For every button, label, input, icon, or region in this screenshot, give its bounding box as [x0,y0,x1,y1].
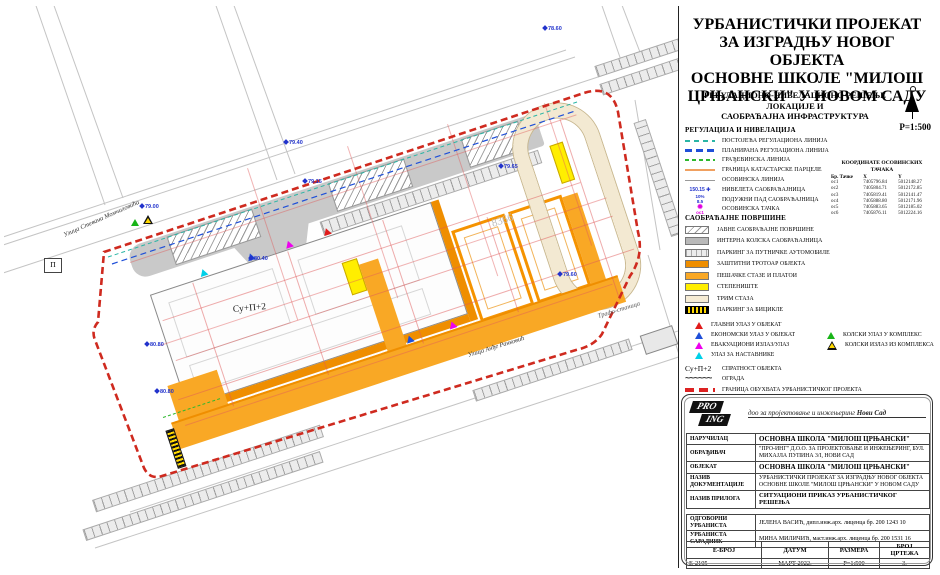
site-plan-map: 78.60 79.40 79.00 79.15 80.40 80.80 80.8… [4,6,679,568]
info-row: ОБЈЕКАТОСНОВНА ШКОЛА "МИЛОШ ЦРЊАНСКИ" [687,462,930,473]
stairs-swatch [685,283,709,291]
info-row: ОБРАЂИВАЧ"ПРО-ИНГ" Д.О.О. ЗА ПРОЈЕКТОВАЊ… [687,445,930,462]
axis-points-coordinate-table: КООРДИНАТЕ ОСОВИНСКИХ ТАЧАКА Бр. Тачке X… [831,160,933,218]
spot-level: 80.40 [254,256,268,262]
footer-table: Е-БРОЈ ДАТУМ РАЗМЕРА БРОЈ ЦРТЕЖА Е-2105 … [686,541,930,569]
floors-legend-row: Су+П+2 СПРАТНОСТ ОБЈЕКТА [685,364,782,373]
title-block-panel: УРБАНИСТИЧКИ ПРОЈЕКАТ ЗА ИЗГРАДЊУ НОВОГ … [679,6,936,568]
bicycle-parking-swatch [685,306,709,314]
protective-sidewalk-swatch [685,260,709,268]
drawing-subtitle: РЕГУЛАЦИОНО-НИВЕЛАЦИОНО РЕШЕЊЕ ЛОКАЦИЈЕ … [695,90,895,122]
axis-line-swatch [685,180,715,181]
info-row: ОДГОВОРНИ УРБАНИСТАЈЕЛЕНА ВАСИЋ, дипл.ин… [687,515,930,531]
footer-value-row: Е-2105 МАРТ 2022. Р=1:500 3. [687,559,930,569]
info-row: НАЗИВ ПРИЛОГАСИТУАЦИОНИ ПРИКАЗ УРБАНИСТИ… [687,490,930,509]
trim-track-swatch [685,295,709,303]
pro-ing-logo: PRO ING [691,401,745,428]
title-block-box: PRO ING доо за пројектовање и инжењеринг… [681,394,933,566]
car-parking-swatch [685,249,709,257]
spot-level: 79.65 [504,164,518,170]
legend-regulation-heading: РЕГУЛАЦИЈА И НИВЕЛАЦИЈА [685,126,796,134]
footer-header-row: Е-БРОЈ ДАТУМ РАЗМЕРА БРОЈ ЦРТЕЖА [687,542,930,559]
internal-road-swatch [685,237,709,245]
project-info-table: НАРУЧИЛАЦОСНОВНА ШКОЛА "МИЛОШ ЦРЊАНСКИ" … [686,433,930,509]
p-box-label: П [44,258,62,273]
economic-entrance-icon [695,332,703,339]
main-entrance-icon [695,322,703,329]
spot-level: 79.15 [308,179,322,185]
planned-regulation-line-swatch [685,149,715,152]
spot-level: 80.80 [150,342,164,348]
public-traffic-swatch [685,226,709,234]
building-line-swatch [685,159,715,161]
teachers-entrance-icon [695,352,703,359]
legend-surfaces-list: ЈАВНЕ САОБРАЋАЈНЕ ПОВРШИНЕ ИНТЕРНА КОЛСК… [685,224,835,316]
vehicle-entrance-marker [131,219,139,226]
vehicle-exit-icon [827,341,837,350]
drawing-sheet: 78.60 79.40 79.00 79.15 80.40 80.80 80.8… [0,0,940,575]
evacuation-exit-icon [695,342,703,349]
existing-regulation-line-swatch [685,140,715,142]
spot-level: 78.60 [548,26,562,32]
project-boundary-legend-row: ГРАНИЦА ОБУХВАТА УРБАНИСТИЧКОГ ПРОЈЕКТА [685,387,862,393]
spot-level: 79.00 [145,204,159,210]
north-arrow-icon [904,86,920,120]
project-boundary [4,6,679,568]
coord-row: ос67405876.115012224.16 [831,211,933,217]
info-row: НАРУЧИЛАЦОСНОВНА ШКОЛА "МИЛОШ ЦРЊАНСКИ" [687,434,930,445]
fence-legend-row: ~~~~~~ ОГРАДА [685,376,744,382]
company-tagline: доо за пројектовање и инжењеринг Нови Са… [748,409,926,418]
pedestrian-path-swatch [685,272,709,280]
spot-level: 79.60 [563,272,577,278]
cadastral-parcel-line-swatch [685,169,715,171]
info-row: НАЗИВ ДОКУМЕНТАЦИЈЕУРБАНИСТИЧКИ ПРОЈЕКАТ… [687,473,930,490]
legend-entrances-right: КОЛСКИ УЛАЗ У КОМПЛЕКС КОЛСКИ ИЗЛАЗ ИЗ К… [827,330,935,350]
legend-entrances-left: ГЛАВНИ УЛАЗ У ОБЈЕКАТ ЕКОНОМСКИ УЛАЗ У О… [695,320,825,360]
spot-level: 80.80 [160,389,174,395]
legend-surfaces-heading: САОБРАЋАЈНЕ ПОВРШИНЕ [685,214,786,222]
vehicle-entrance-icon [827,332,835,339]
scale-label: Р=1:500 [879,122,931,132]
spot-level: 79.40 [289,140,303,146]
legend-regulation-list: ПОСТОЈЕЋА РЕГУЛАЦИОНА ЛИНИЈА ПЛАНИРАНА Р… [685,136,835,214]
fence-squiggle: ~~~~~~ [685,376,722,382]
boundary-dash-swatch [685,388,715,392]
vehicle-exit-marker [143,215,153,224]
road-level-symbol: 150.15 ✚ [685,187,715,193]
